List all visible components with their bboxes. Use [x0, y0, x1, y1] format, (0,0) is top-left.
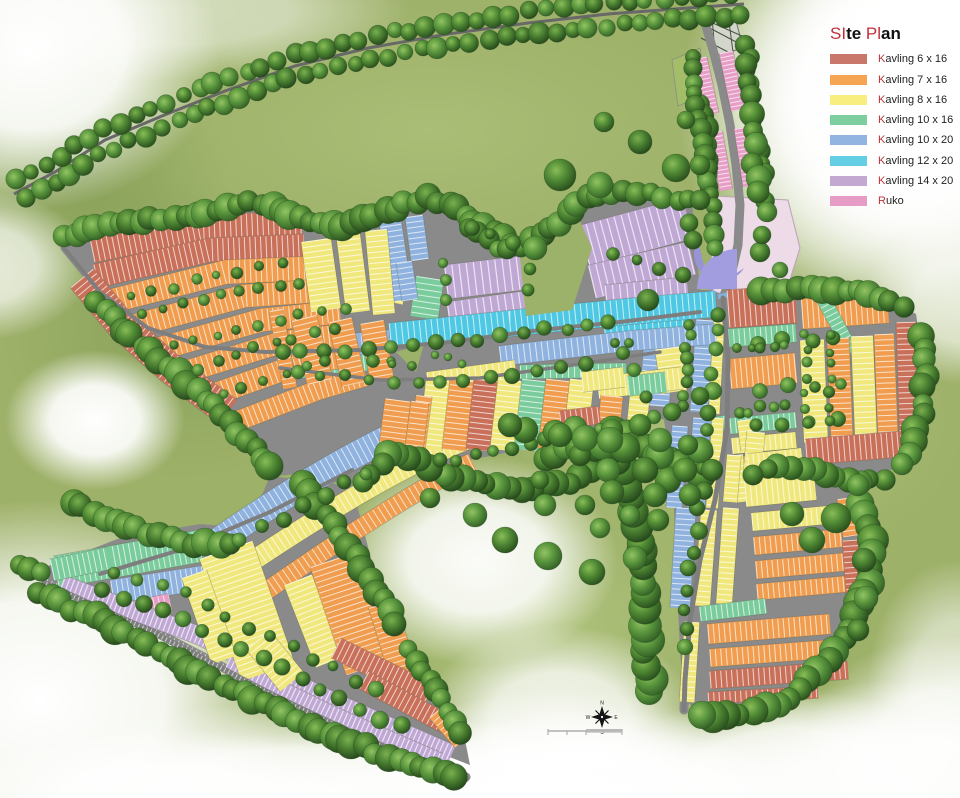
svg-text:N: N: [600, 701, 604, 707]
svg-text:W: W: [586, 715, 591, 721]
